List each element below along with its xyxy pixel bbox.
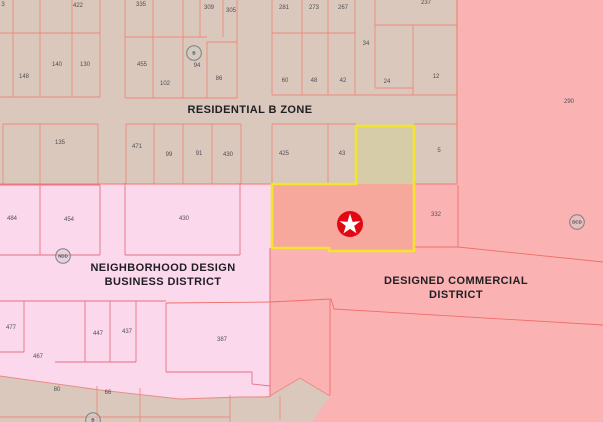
parcel-label-94: 94 [194, 63, 201, 69]
parcel-label-467: 467 [33, 354, 44, 360]
residential-b-zone-text: RESIDENTIAL B ZONE [188, 104, 313, 116]
parcel-label-437: 437 [122, 329, 133, 335]
parcel-label-290: 290 [564, 99, 575, 105]
dcd-label-line1: DESIGNED COMMERCIAL [384, 275, 528, 287]
zone-code-marker-b: B [187, 46, 202, 61]
ndd-label-line1: NEIGHBORHOOD DESIGN [90, 262, 235, 274]
zone-neighborhood-design-business-district [0, 184, 272, 399]
parcel-label-455: 455 [137, 62, 148, 68]
parcel-label-471: 471 [132, 144, 143, 150]
parcel-label-130: 130 [80, 62, 91, 68]
parcel-label-305: 305 [226, 8, 237, 14]
parcel-label-60: 60 [282, 78, 289, 84]
parcel-label-12: 12 [433, 74, 440, 80]
residential-b-zone-label: RESIDENTIAL B ZONE [188, 103, 313, 117]
parcel-label-430: 430 [223, 152, 234, 158]
zone-code-marker-dcd: DCD [570, 215, 585, 230]
star-marker[interactable] [337, 211, 363, 237]
parcel-label-24: 24 [384, 79, 391, 85]
parcel-label-387: 387 [217, 337, 228, 343]
parcel-label-48: 48 [311, 78, 318, 84]
parcel-label-484: 484 [7, 216, 18, 222]
parcel-label-281: 281 [279, 5, 290, 11]
ndd-label-line2: BUSINESS DISTRICT [105, 276, 222, 288]
neighborhood-design-business-district-label: NEIGHBORHOOD DESIGN BUSINESS DISTRICT [90, 261, 235, 289]
parcel-label-42: 42 [340, 78, 347, 84]
zone-code-marker-ndd: NDD [56, 249, 71, 264]
parcel-label-102: 102 [160, 81, 171, 87]
marker-text: B [192, 51, 195, 56]
parcel-label-273: 273 [309, 5, 320, 11]
parcel-label-309: 309 [204, 5, 215, 11]
parcel-label-425: 425 [279, 151, 290, 157]
designed-commercial-district-label: DESIGNED COMMERCIAL DISTRICT [384, 274, 528, 302]
marker-text: DCD [572, 220, 582, 225]
parcel-label-430: 430 [179, 216, 190, 222]
parcel-label-335: 335 [136, 2, 147, 8]
marker-text: NDD [58, 254, 68, 259]
dcd-label-line2: DISTRICT [429, 289, 483, 301]
parcel-label-43: 43 [339, 151, 346, 157]
parcel-label-447: 447 [93, 331, 104, 337]
marker-text: B [91, 418, 94, 422]
parcel-label-267: 267 [338, 5, 349, 11]
parcel-label-91: 91 [196, 151, 203, 157]
parcel-label-237: 237 [421, 0, 432, 6]
parcel-label-86: 86 [216, 76, 223, 82]
parcel-label-135: 135 [55, 140, 66, 146]
parcel-label-99: 99 [166, 152, 173, 158]
parcel-label-66: 66 [105, 390, 112, 396]
parcel-label-80: 80 [54, 387, 61, 393]
parcel-label-140: 140 [52, 62, 63, 68]
parcel-label-332: 332 [431, 212, 442, 218]
map-canvas: BNDDDCDB 3422148140130335309305455102948… [0, 0, 603, 422]
zoning-map: BNDDDCDB 3422148140130335309305455102948… [0, 0, 603, 422]
parcel-label-422: 422 [73, 3, 84, 9]
parcel-label-454: 454 [64, 217, 75, 223]
selected-parcel-upper-lot[interactable] [356, 126, 414, 184]
parcel-label-34: 34 [363, 41, 370, 47]
parcel-label-477: 477 [6, 325, 17, 331]
parcel-label-148: 148 [19, 74, 30, 80]
